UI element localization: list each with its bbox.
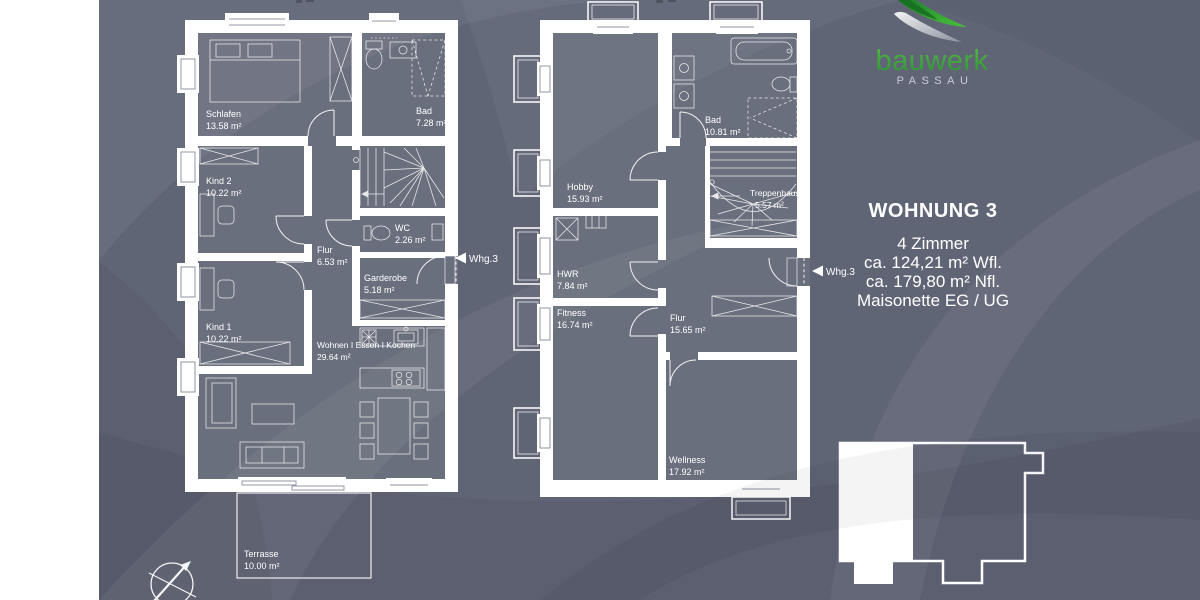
area-wc: 2.26 m² bbox=[395, 235, 426, 245]
label-wohnen: Wohnen I Essen I Kochen bbox=[317, 340, 415, 350]
brand-name: bauwerk bbox=[875, 45, 988, 77]
area-treppenhaus: 5.57 m² bbox=[755, 200, 784, 210]
area-hobby: 15.93 m² bbox=[567, 194, 603, 204]
label-garderobe: Garderobe bbox=[364, 273, 407, 283]
window bbox=[177, 358, 199, 396]
area-bad-ug: 10.81 m² bbox=[705, 127, 741, 137]
area-wellness: 17.92 m² bbox=[669, 467, 705, 477]
area-kind2: 10.22 m² bbox=[206, 188, 242, 198]
label-hobby: Hobby bbox=[567, 182, 594, 192]
page-margin bbox=[0, 0, 99, 600]
info-rooms: 4 Zimmer bbox=[897, 234, 969, 253]
window bbox=[177, 263, 199, 301]
label-bad-eg: Bad bbox=[416, 106, 432, 116]
label-bad-ug: Bad bbox=[705, 115, 721, 125]
label-kind1: Kind 1 bbox=[206, 322, 232, 332]
area-garderobe: 5.18 m² bbox=[364, 285, 395, 295]
label-wc: WC bbox=[395, 223, 410, 233]
apartment-title: WOHNUNG 3 bbox=[869, 200, 998, 222]
label-kind2: Kind 2 bbox=[206, 176, 232, 186]
brand-city: PASSAU bbox=[897, 75, 974, 87]
entry-label-eg: Whg.3 bbox=[469, 254, 498, 265]
label-treppenhaus: Treppenhaus bbox=[750, 188, 800, 198]
area-bad-eg: 7.28 m² bbox=[416, 118, 447, 128]
label-flur-eg: Flur bbox=[317, 245, 333, 255]
brochure-page: Schlafen 13.58 m² Bad 7.28 m² Kind 2 10.… bbox=[0, 0, 1200, 600]
floorplan-canvas: Schlafen 13.58 m² Bad 7.28 m² Kind 2 10.… bbox=[0, 0, 1200, 600]
area-wohnen: 29.64 m² bbox=[317, 352, 351, 362]
info-living-area: ca. 124,21 m² Wfl. bbox=[864, 253, 1002, 272]
room-fitness bbox=[553, 306, 658, 480]
entry-label-ug: Whg.3 bbox=[826, 267, 855, 278]
area-flur-eg: 6.53 m² bbox=[317, 257, 348, 267]
label-flur-ug: Flur bbox=[670, 313, 686, 323]
area-kind1: 10.22 m² bbox=[206, 334, 242, 344]
label-wellness: Wellness bbox=[669, 455, 706, 465]
window bbox=[386, 478, 432, 492]
room-flur-eg bbox=[312, 146, 352, 342]
room-treppe-eg bbox=[360, 146, 445, 208]
area-flur-ug: 15.65 m² bbox=[670, 325, 706, 335]
